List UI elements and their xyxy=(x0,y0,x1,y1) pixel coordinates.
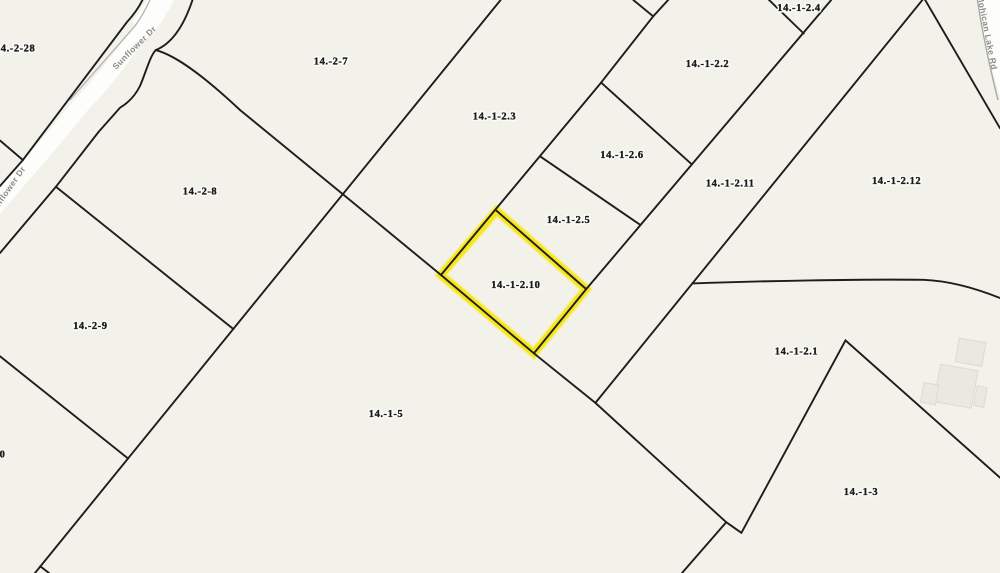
svg-text:14.-1-2.2: 14.-1-2.2 xyxy=(686,59,729,70)
svg-text:14.-1-2.11: 14.-1-2.11 xyxy=(706,179,755,190)
svg-text:14.-2-10: 14.-2-10 xyxy=(0,450,6,461)
svg-text:14.-1-3: 14.-1-3 xyxy=(844,487,878,498)
svg-text:14.-2-28: 14.-2-28 xyxy=(0,44,35,55)
svg-text:14.-1-2.6: 14.-1-2.6 xyxy=(600,150,643,161)
svg-text:14.-1-2.3: 14.-1-2.3 xyxy=(473,112,516,123)
svg-text:14.-1-2.5: 14.-1-2.5 xyxy=(547,215,590,226)
svg-text:14.-2-7: 14.-2-7 xyxy=(314,57,348,68)
svg-text:14.-1-2.12: 14.-1-2.12 xyxy=(872,176,921,187)
svg-text:14.-1-5: 14.-1-5 xyxy=(369,409,403,420)
svg-text:14.-2-9: 14.-2-9 xyxy=(73,321,107,332)
svg-text:14.-2-8: 14.-2-8 xyxy=(183,187,217,198)
svg-text:14.-1-2.1: 14.-1-2.1 xyxy=(775,347,818,358)
svg-text:14.-1-2.4: 14.-1-2.4 xyxy=(777,3,821,14)
svg-text:14.-1-2.10: 14.-1-2.10 xyxy=(491,280,540,291)
